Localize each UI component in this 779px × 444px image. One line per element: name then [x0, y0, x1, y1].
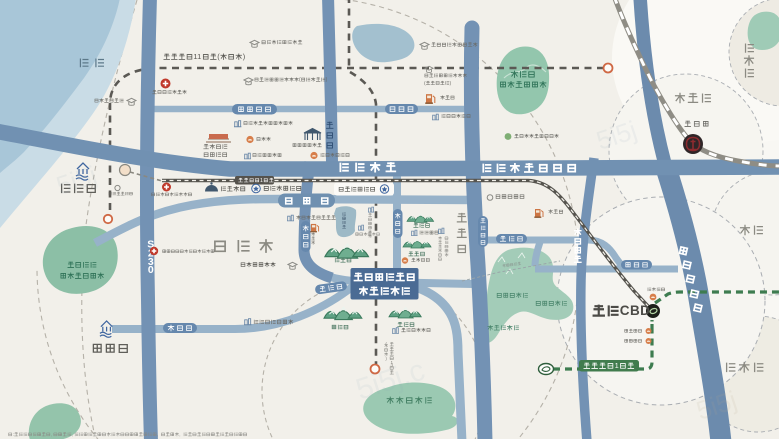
- svg-text:CBD: CBD: [620, 303, 650, 318]
- svg-text:11: 11: [193, 52, 201, 61]
- svg-text:1: 1: [615, 361, 620, 370]
- svg-text::: :: [13, 432, 14, 437]
- svg-text:(: (: [217, 52, 220, 61]
- svg-text:1: 1: [260, 178, 263, 184]
- svg-text:0: 0: [148, 264, 154, 276]
- svg-text:): ): [243, 52, 246, 61]
- svg-text:,: ,: [51, 432, 52, 437]
- svg-text:,: ,: [72, 432, 73, 437]
- svg-text:,: ,: [179, 432, 180, 437]
- svg-text:,: ,: [157, 432, 158, 437]
